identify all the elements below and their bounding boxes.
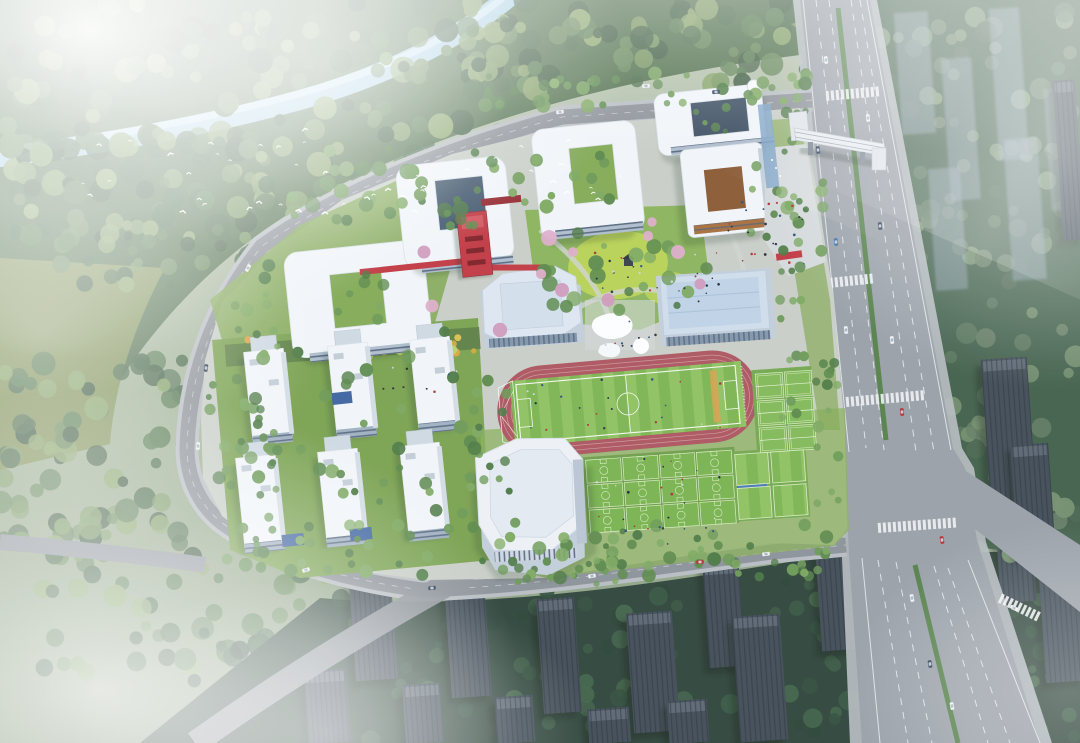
campus-aerial-rendering: [0, 0, 1080, 743]
fog-and-light: [0, 0, 1080, 743]
